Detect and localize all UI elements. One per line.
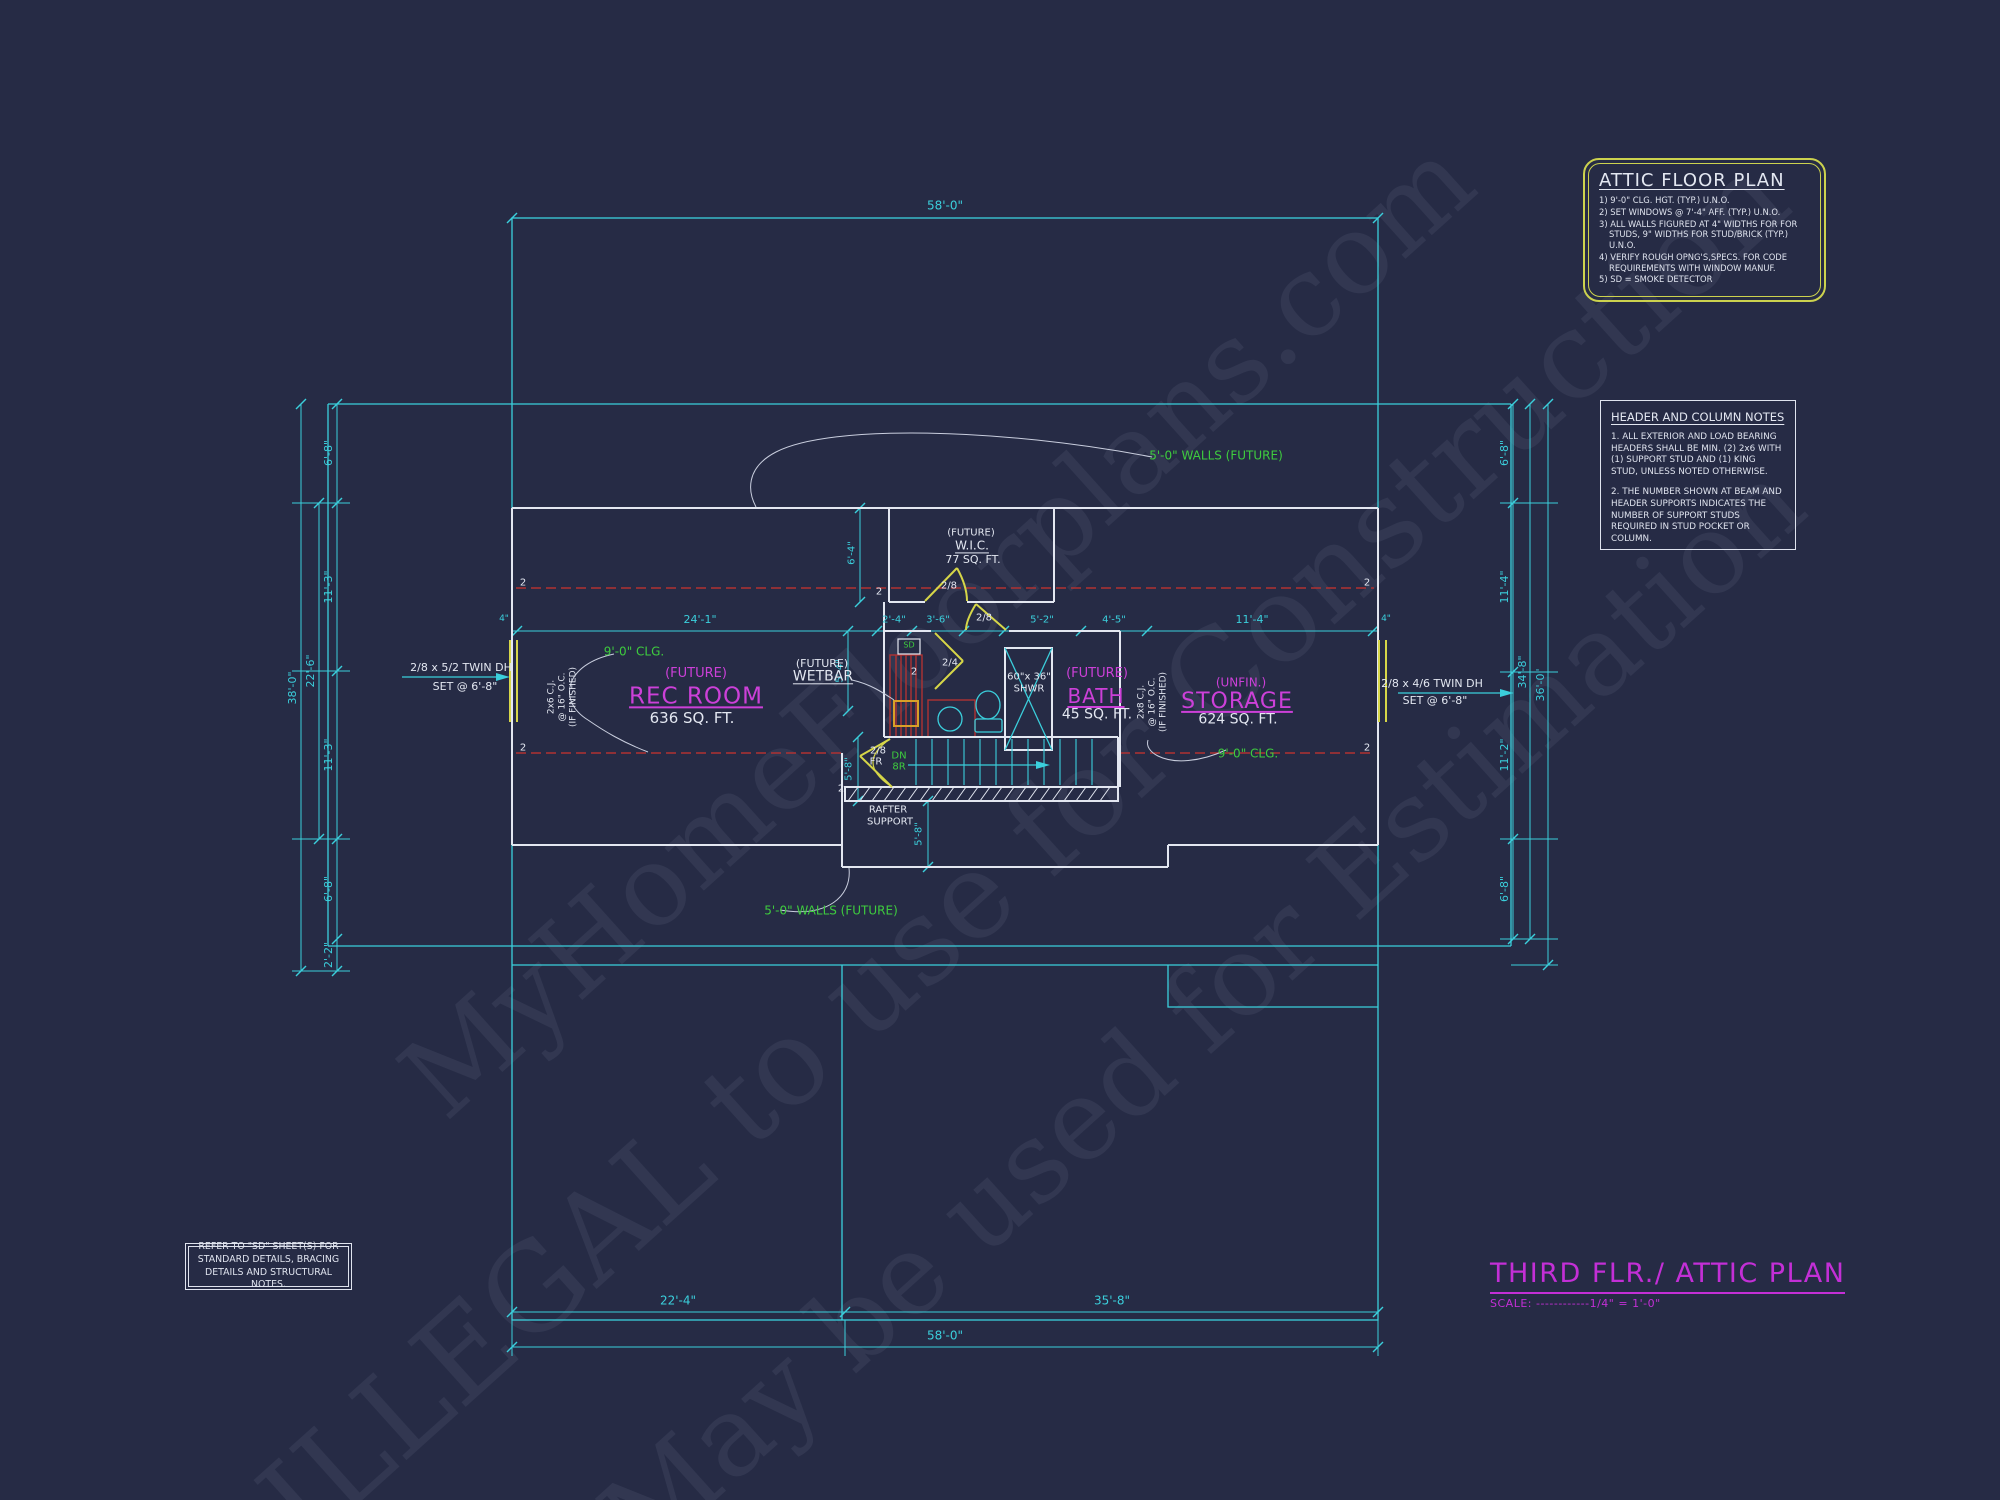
sd-reference-box: REFER TO "SD" SHEET(S) FOR STANDARD DETA… [185, 1243, 352, 1290]
bath-area: 45 SQ. FT. [1062, 707, 1132, 722]
stair-risers-label: 8R [892, 762, 905, 773]
stair-dn-label: DN [891, 751, 906, 762]
twin-dh-left-1: 2/8 x 5/2 TWIN DH [410, 662, 512, 674]
twin-dh-right-1: 2/8 x 4/6 TWIN DH [1381, 678, 1483, 690]
twin-dh-left-2: SET @ 6'-8" [433, 681, 498, 693]
door-label-fr-1: 2/8 [870, 746, 886, 757]
dim-stair-a: 5'-8" [844, 757, 855, 781]
sheet-title: THIRD FLR./ ATTIC PLAN [1490, 1258, 1845, 1294]
dim-top: 58'-0" [927, 199, 963, 212]
walls-future-top: 5'-0" WALLS (FUTURE) [1149, 449, 1283, 462]
dim-int-45: 4'-5" [1102, 615, 1126, 626]
dim-int-24: 2'-4" [882, 615, 906, 626]
wic-name: W.I.C. [955, 539, 989, 552]
attic-note: 2) SET WINDOWS @ 7'-4" AFF. (TYP.) U.N.O… [1599, 207, 1810, 218]
dim-bottom-right: 35'-8" [1094, 1294, 1130, 1307]
rec-room-tag: (FUTURE) [665, 667, 727, 681]
attic-floor-plan-notes-box: ATTIC FLOOR PLAN 1) 9'-0" CLG. HGT. (TYP… [1583, 158, 1826, 302]
dimension-ticks [296, 213, 1553, 1352]
rec-room-name: REC ROOM [629, 684, 763, 709]
door-label-24: 2/4 [942, 658, 958, 669]
door-label-wic: 2/8 [941, 581, 957, 592]
dim-wic-height: 6'-4" [847, 541, 858, 565]
stud-marker: 2 [520, 743, 526, 754]
dim-left-2: 11'-3" [323, 570, 335, 603]
wic-tag: (FUTURE) [947, 528, 995, 539]
twin-dh-right-2: SET @ 6'-8" [1403, 695, 1468, 707]
attic-notes-title: ATTIC FLOOR PLAN [1599, 170, 1810, 191]
sheet-scale: SCALE: ------------1/4" = 1'-0" [1490, 1297, 1845, 1310]
sd-reference-text: REFER TO "SD" SHEET(S) FOR STANDARD DETA… [188, 1246, 349, 1287]
dim-left-3: 11'-3" [323, 738, 335, 771]
stud-marker: 2 [838, 784, 844, 795]
attic-note: 5) SD = SMOKE DETECTOR [1599, 274, 1810, 285]
dimension-lines [292, 404, 1558, 1356]
dim-int-28-door: 2/8 [976, 613, 992, 624]
bath-name: BATH [1067, 685, 1124, 707]
header-note-2: 2. THE NUMBER SHOWN AT BEAM AND HEADER S… [1611, 487, 1785, 545]
attic-note: 1) 9'-0" CLG. HGT. (TYP.) U.N.O. [1599, 195, 1810, 206]
dim-right-6: 36'-0" [1535, 668, 1547, 701]
stud-marker: 2 [876, 587, 882, 598]
wall-hatch [848, 787, 1110, 801]
rec-room-area: 636 SQ. FT. [650, 710, 735, 727]
toilet-tank [975, 719, 1002, 732]
walls-future-bottom: 5'-0" WALLS (FUTURE) [764, 904, 898, 917]
toilet-bowl [976, 691, 1000, 719]
roof-outline [328, 218, 1511, 1320]
dim-bottom-left: 22'-4" [660, 1294, 696, 1307]
attic-note: 3) ALL WALLS FIGURED AT 4" WIDTHS FOR FO… [1599, 219, 1810, 251]
rafter-support-1: RAFTER [869, 805, 907, 816]
dim-stair-b: 5'-8" [914, 822, 925, 846]
dim-left-7: 38'-0" [287, 671, 299, 704]
dim-right-1: 6'-8" [1499, 440, 1511, 466]
dim-left-4: 6'-8" [323, 876, 335, 902]
dim-left-1: 6'-8" [323, 440, 335, 466]
dim-int-52: 5'-2" [1030, 615, 1054, 626]
dim-int-4a: 4" [499, 615, 509, 625]
header-column-notes-box: HEADER AND COLUMN NOTES 1. ALL EXTERIOR … [1600, 400, 1796, 550]
stud-marker: 2 [1364, 743, 1370, 754]
joist-note-left: 2x6 C.J. @ 16" O.C. (IF FINISHED) [547, 667, 580, 727]
storage-area: 624 SQ. FT. [1198, 712, 1277, 727]
dim-int-4b: 4" [1381, 615, 1391, 625]
header-notes-title: HEADER AND COLUMN NOTES [1611, 410, 1785, 424]
rafter-support-2: SUPPORT [867, 817, 913, 828]
joist-note-right: 2x8 C.J. @ 16" O.C. (IF FINISHED) [1137, 672, 1170, 732]
dim-right-5: 34'-8" [1517, 655, 1529, 688]
dim-left-5: 2'-2" [323, 942, 335, 968]
bath-tag: (FUTURE) [1066, 667, 1128, 681]
dim-int-36: 3'-6" [926, 615, 950, 626]
attic-note: 4) VERIFY ROUGH OPNG'S,SPECS. FOR CODE R… [1599, 252, 1810, 274]
attic-floor-plan-drawing: MyHomeFloorplans.com ILLEGAL to use for … [0, 0, 2000, 1500]
stud-marker: 2 [1364, 578, 1370, 589]
shower-size-2: SHWR [1014, 684, 1045, 695]
header-note-1: 1. ALL EXTERIOR AND LOAD BEARING HEADERS… [1611, 432, 1785, 478]
smoke-detector-label: SD [903, 642, 914, 651]
dim-int-241: 24'-1" [683, 614, 716, 626]
shower-size-1: 60"x 36" [1007, 672, 1051, 683]
ceiling-label-right: 9'-0" CLG. [1218, 747, 1278, 760]
dim-left-6: 22'-6" [305, 654, 317, 687]
vanity-sink [938, 707, 962, 731]
dim-right-2: 11'-4" [1499, 570, 1511, 603]
sheet-title-block: THIRD FLR./ ATTIC PLAN SCALE: ----------… [1490, 1258, 1845, 1310]
dim-int-114: 11'-4" [1235, 614, 1268, 626]
stud-marker: 2 [520, 578, 526, 589]
dim-bottom-total: 58'-0" [927, 1329, 963, 1342]
dim-right-3: 11'-2" [1499, 738, 1511, 771]
ceiling-label-left: 9'-0" CLG. [604, 645, 664, 658]
storage-tag: (UNFIN.) [1216, 676, 1266, 689]
door-label-fr-2: FR [870, 757, 883, 768]
stud-marker: 2 [911, 667, 917, 678]
dim-right-4: 6'-8" [1499, 876, 1511, 902]
wic-area: 77 SQ. FT. [945, 554, 1000, 566]
wetbar-name: WETBAR [793, 669, 853, 684]
